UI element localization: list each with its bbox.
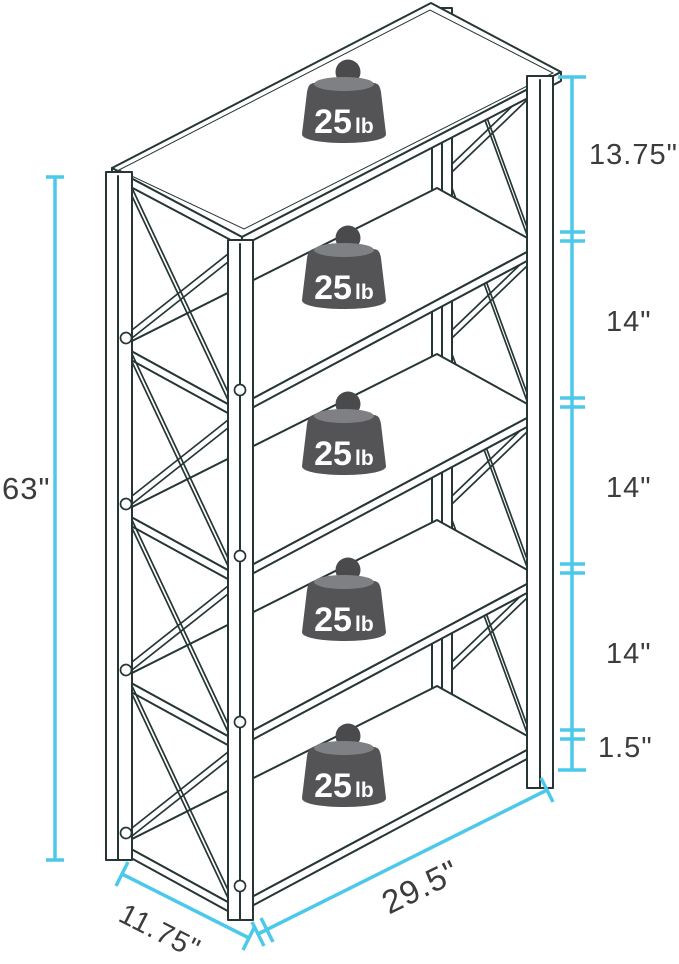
total-height-label: 63" (2, 471, 51, 506)
top-gap-label: 13.75" (589, 139, 678, 171)
leg-front-right (527, 76, 553, 788)
weight-unit-label: lb (355, 779, 374, 802)
leg-back-left (106, 172, 132, 860)
bottom-gap-label: 1.5" (598, 732, 653, 764)
shelf-gap-label-3: 14" (606, 638, 652, 670)
weight-value-label: 25 (314, 601, 352, 639)
weight-value-label: 25 (314, 435, 352, 473)
shelf-gap-dimension-lines (558, 77, 586, 770)
total-height-dimension-line (46, 177, 64, 860)
weight-value-label: 25 (314, 269, 352, 307)
weight-value-label: 25 (314, 103, 352, 141)
leg-front-left (228, 240, 253, 920)
shelf-gap-label-2: 14" (606, 472, 652, 504)
weight-unit-label: lb (355, 447, 374, 470)
diagram-stage: 25 lb 25 lb 25 lb 25 lb 25 lb (0, 0, 679, 964)
shelf-gap-label-1: 14" (606, 306, 652, 338)
weight-unit-label: lb (355, 613, 374, 636)
weight-value-label: 25 (314, 767, 352, 805)
width-label: 29.5" (376, 852, 465, 921)
bookshelf-dimension-diagram: 25 lb 25 lb 25 lb 25 lb 25 lb (0, 0, 679, 964)
weight-unit-label: lb (355, 281, 374, 304)
weight-unit-label: lb (355, 115, 374, 138)
